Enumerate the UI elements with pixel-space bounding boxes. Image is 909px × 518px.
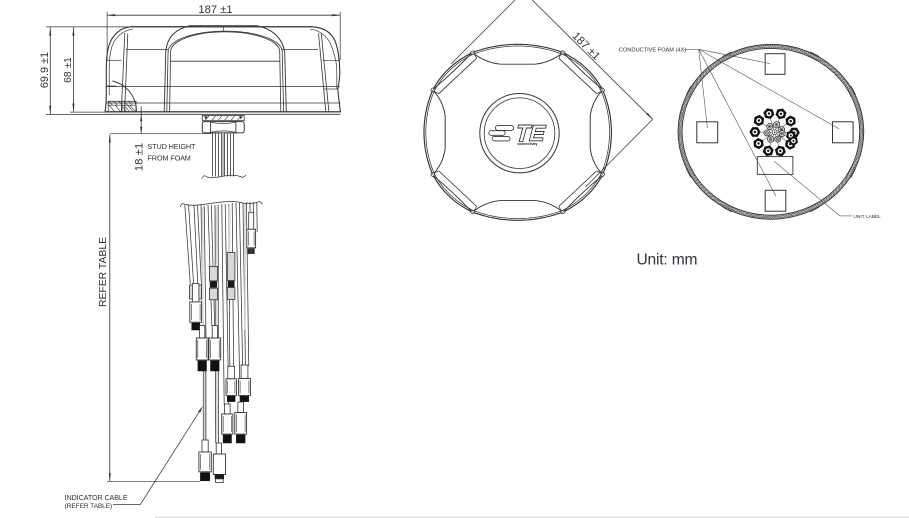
svg-text:18 ±1: 18 ±1 <box>133 143 145 171</box>
svg-text:(REFER TABLE): (REFER TABLE) <box>65 503 113 510</box>
svg-text:69.9 ±1: 69.9 ±1 <box>39 52 51 88</box>
svg-text:CONDUCTIVE FOAM (4X): CONDUCTIVE FOAM (4X) <box>619 48 686 54</box>
svg-text:INDICATOR CABLE: INDICATOR CABLE <box>65 493 128 502</box>
svg-text:68 ±1: 68 ±1 <box>63 57 74 83</box>
svg-text:UNIT LABEL: UNIT LABEL <box>853 214 881 220</box>
svg-text:FROM FOAM: FROM FOAM <box>148 153 191 162</box>
svg-text:REFER TABLE: REFER TABLE <box>98 237 109 307</box>
svg-text:STUD HEIGHT: STUD HEIGHT <box>148 142 196 151</box>
svg-text:Unit: mm: Unit: mm <box>637 251 698 268</box>
svg-text:connectivity: connectivity <box>517 142 537 146</box>
svg-text:187 ±1: 187 ±1 <box>198 4 232 16</box>
